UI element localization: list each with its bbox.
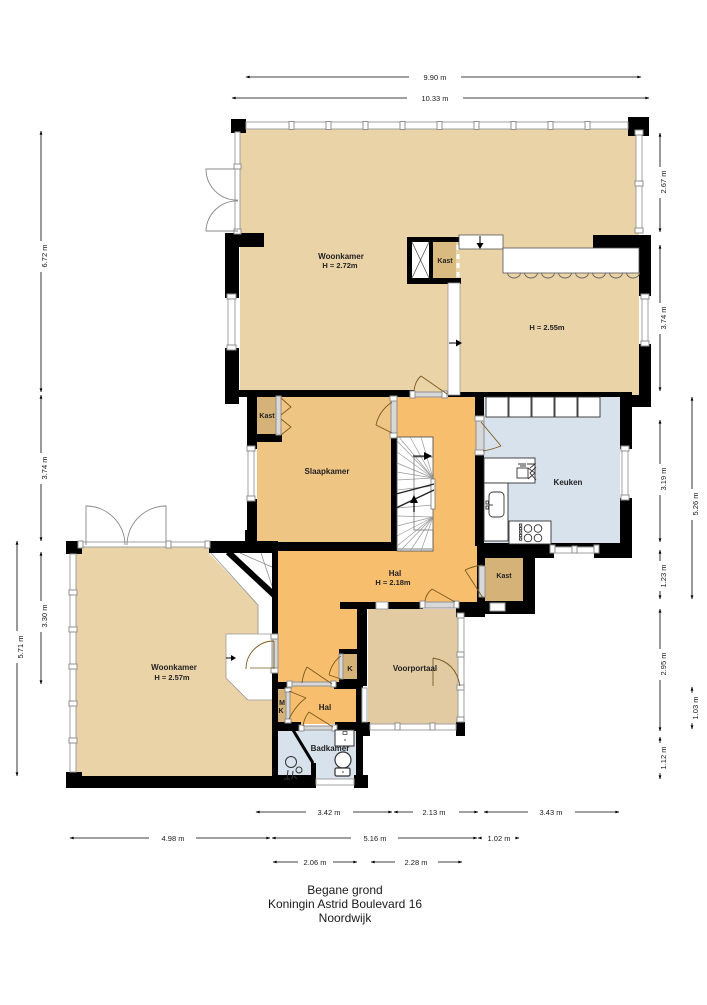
svg-text:Kast: Kast — [437, 258, 453, 265]
svg-text:K: K — [347, 664, 353, 673]
svg-text:M: M — [279, 700, 285, 707]
svg-text:H = 2.18m: H = 2.18m — [375, 578, 411, 587]
svg-text:2.95 m: 2.95 m — [659, 653, 668, 676]
svg-text:Badkamer: Badkamer — [311, 744, 350, 753]
svg-text:Slaapkamer: Slaapkamer — [305, 467, 350, 476]
svg-text:9.90 m: 9.90 m — [424, 73, 447, 82]
svg-text:5.26 m: 5.26 m — [691, 493, 700, 516]
svg-text:2.28 m: 2.28 m — [405, 858, 428, 867]
svg-text:Begane grond: Begane grond — [307, 883, 382, 897]
svg-text:3.43 m: 3.43 m — [540, 808, 563, 817]
svg-text:10.33 m: 10.33 m — [421, 94, 448, 103]
svg-text:Koningin Astrid Boulevard 16: Koningin Astrid Boulevard 16 — [268, 897, 422, 911]
svg-text:4.98 m: 4.98 m — [162, 834, 185, 843]
svg-text:3.19 m: 3.19 m — [659, 468, 668, 491]
svg-text:Keuken: Keuken — [554, 478, 583, 487]
svg-text:3.74 m: 3.74 m — [659, 307, 668, 330]
svg-text:2.13 m: 2.13 m — [423, 808, 446, 817]
svg-text:Hal: Hal — [319, 703, 331, 712]
svg-text:H = 2.57m: H = 2.57m — [154, 673, 190, 682]
svg-text:H = 2.72m: H = 2.72m — [322, 261, 358, 270]
svg-text:Woonkamer: Woonkamer — [151, 663, 197, 672]
svg-text:1.12 m: 1.12 m — [659, 747, 668, 770]
svg-text:H = 2.55m: H = 2.55m — [529, 323, 565, 332]
svg-text:6.72 m: 6.72 m — [40, 245, 49, 268]
svg-text:Kast: Kast — [259, 413, 275, 420]
svg-text:3.30 m: 3.30 m — [40, 605, 49, 628]
svg-text:3.74 m: 3.74 m — [40, 457, 49, 480]
svg-text:Hal: Hal — [389, 569, 401, 578]
svg-text:K: K — [278, 708, 283, 715]
svg-text:2.06 m: 2.06 m — [304, 858, 327, 867]
svg-text:1.03 m: 1.03 m — [691, 697, 700, 720]
svg-text:Voorportaal: Voorportaal — [393, 664, 437, 673]
svg-text:1.02 m: 1.02 m — [488, 834, 511, 843]
svg-text:Noordwijk: Noordwijk — [319, 911, 373, 925]
svg-text:3.42 m: 3.42 m — [318, 808, 341, 817]
svg-text:5.71 m: 5.71 m — [16, 636, 25, 659]
svg-text:2.67 m: 2.67 m — [659, 171, 668, 194]
svg-text:Kast: Kast — [496, 573, 512, 580]
svg-text:Woonkamer: Woonkamer — [318, 252, 364, 261]
svg-text:1.23 m: 1.23 m — [659, 565, 668, 588]
svg-text:5.16 m: 5.16 m — [364, 834, 387, 843]
